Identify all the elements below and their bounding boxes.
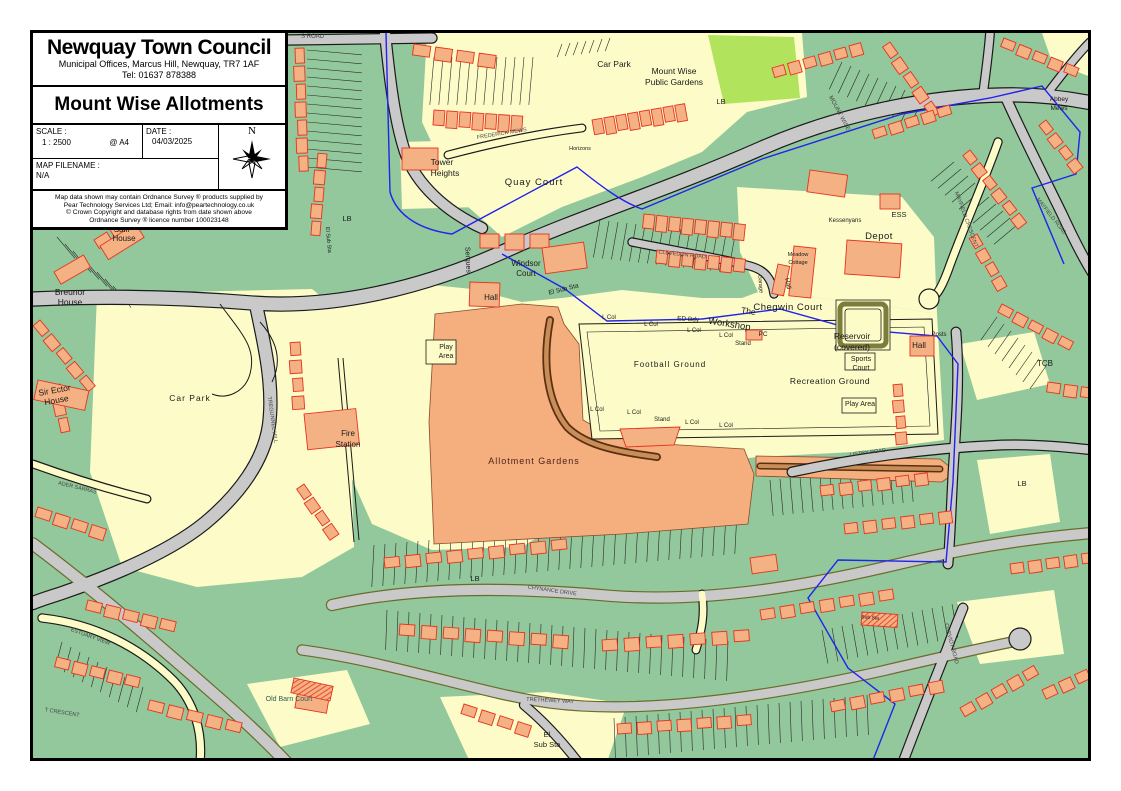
council-name: Newquay Town Council [35,36,283,59]
map-label: Tower [431,157,454,167]
map-label: Car Park [597,59,631,69]
stand-south [620,427,680,447]
page: 'S ROADCar ParkMount WisePublic GardensL… [0,0,1121,791]
map-label: Cottage [788,260,807,266]
map-label: L Col [685,420,699,426]
map-label: Station [336,440,361,449]
title-block: Newquay Town Council Municipal Offices, … [30,30,288,230]
terrace-building [830,699,846,711]
filename-value: N/A [36,171,215,181]
map-label: Fire [341,429,355,438]
map-label: Heights [431,168,460,178]
terrace-building [295,102,307,117]
terrace-building [290,342,301,356]
terrace-building [733,224,746,241]
map-label: House [112,234,136,243]
terrace-building [446,111,458,129]
terrace-building [405,554,421,568]
map-label: Play [439,344,453,351]
map-label: Serques [463,247,471,274]
map-label: Sports [851,356,872,363]
mid-building [750,554,778,573]
map-label: LB [716,97,725,106]
terrace-building [468,548,484,560]
terrace-building [443,627,459,639]
map-label: Court [852,365,869,372]
map-label: Court [516,269,536,278]
terrace-building [294,66,306,81]
map-label: Car Park [169,393,211,403]
terrace-building [412,44,430,57]
map-label: LB [1017,479,1026,488]
terrace-building [553,635,569,649]
terrace-building [737,715,752,726]
terrace-building [889,688,905,702]
terrace-building [657,720,672,731]
terrace-building [858,480,872,492]
council-address: Municipal Offices, Marcus Hill, Newquay,… [35,59,283,70]
north-arrow-icon [230,137,274,181]
terrace-building [1046,557,1060,569]
road-turning-circle [1009,628,1031,650]
map-title: Mount Wise Allotments [33,87,285,125]
compass-cell: N [219,125,285,189]
terrace-building [530,234,549,248]
terrace-building [637,722,652,735]
map-label: 'S ROAD [300,34,325,40]
date-label: DATE : [146,127,171,136]
terrace-building [426,552,442,564]
terrace-building [488,545,504,559]
terrace-building [551,539,567,551]
terrace-building [901,515,915,528]
map-label: Hall [484,293,498,302]
terrace-building [1028,560,1043,574]
map-label: Windsor [511,259,541,268]
terrace-building [313,170,325,185]
terrace-building [734,630,750,642]
terrace-building [938,511,952,524]
terrace-building [602,639,618,651]
scale-label: SCALE : [36,127,67,136]
map-label: Quay Court [505,177,564,188]
scale-value: 1 : 2500 [42,138,71,148]
terrace-building [1047,382,1061,394]
terrace-building [760,608,775,620]
map-label: Chegwin Court [753,302,822,313]
map-label: (covered) [834,342,870,352]
terrace-building [592,118,604,135]
terrace-building [1063,555,1078,569]
copyright-note: Map data shown may contain Ordnance Surv… [33,191,285,227]
terrace-building [892,400,904,413]
terrace-building [668,634,684,648]
map-label: Mount Wise [652,66,697,76]
terrace-building [800,602,815,614]
terrace-building [1010,562,1024,574]
terrace-building [919,513,933,525]
terrace-building [663,106,675,123]
terrace-building [895,475,909,487]
terrace-building [1063,384,1078,398]
map-label: L Col [687,328,701,334]
terrace-building [681,218,694,235]
terrace-building [707,221,720,238]
terrace-building [787,60,802,75]
map-label: Stand [654,417,670,423]
terrace-building [456,50,474,63]
terrace-building [707,255,719,269]
map-label: Mews [1051,105,1069,112]
map-label: Posts [931,332,946,338]
date-value: 04/03/2025 [146,137,215,147]
terrace-building [839,482,853,495]
ess-building [880,194,900,209]
map-label: L Col [719,423,733,429]
terrace-building [311,221,321,236]
map-label: Breunor [55,287,85,297]
terrace-building [879,589,894,601]
terrace-building [459,112,471,128]
map-label: Public Gardens [645,77,703,87]
terrace-building [624,637,640,651]
terrace-building [893,384,903,397]
map-label: L Col [627,410,641,416]
terrace-building [509,632,525,646]
terrace-building [909,684,925,696]
terrace-building [839,595,854,607]
map-label: Allotment Gardens [488,456,580,466]
terrace-building [896,416,906,429]
region-public-gardens [708,35,800,104]
copyright-line: Ordnance Survey ® licence number 1000231… [35,217,283,225]
terrace-building [643,214,655,229]
map-label: Horizons [569,146,591,152]
map-label: L Col [644,322,658,328]
terrace-building [292,396,305,410]
map-label: TCB [1037,359,1053,368]
terrace-building [298,120,308,135]
terrace-building [472,113,484,131]
terrace-building [296,84,306,99]
terrace-building [509,543,525,555]
region-cream-lb-right [977,454,1060,534]
terrace-building [844,522,858,534]
terrace-building [859,592,875,606]
terrace-building [505,234,524,250]
terrace-building [818,51,833,66]
terrace-building [317,153,327,168]
date-cell: DATE : 04/03/2025 [143,125,219,159]
terrace-building [639,110,651,127]
terrace-building [780,605,796,619]
terrace-building [399,624,415,636]
map-label: L Col [602,315,616,321]
filename-cell: MAP FILENAME : N/A [33,159,219,189]
terrace-building [485,114,497,130]
terrace-building [434,47,453,62]
terrace-building [820,484,834,496]
depot-building [845,240,902,278]
terrace-building [877,477,891,490]
map-label: Old Barn Court [266,696,313,703]
map-label: ESS [891,210,906,219]
terrace-building [850,696,866,710]
map-label: L Col [590,407,604,413]
terrace-building [433,110,445,126]
terrace-building [882,518,896,530]
terrace-building [677,719,692,732]
terrace-building [895,432,907,445]
terrace-building [616,114,628,131]
map-label: LB [342,214,351,223]
map-label: El [544,730,551,739]
road-turning-circle [919,289,939,309]
map-label: Abbey [1050,96,1069,103]
map-label: LB [470,574,479,583]
terrace-building [295,48,305,63]
copyright-line: Map data shown may contain Ordnance Surv… [35,194,283,202]
map-label: L Col [719,333,733,339]
map-label: Sub Sta [534,740,562,749]
map-label: Recreation Ground [790,376,870,386]
map-label: House [58,297,83,307]
terrace-building [421,626,437,640]
terrace-building [289,360,302,374]
map-label: Area [439,353,454,360]
terrace-building [863,520,877,533]
map-label: Football Ground [634,360,706,369]
kessenyans-building [807,170,848,197]
terrace-building [487,630,503,642]
map-label: Meadow [788,252,809,258]
terrace-building [314,187,324,202]
terrace-building [646,636,662,648]
terrace-building [1081,552,1088,564]
map-label: Kessenyans [829,218,862,224]
terrace-building [720,222,732,237]
terrace-building [1080,387,1088,399]
map-label: Reservoir [834,331,871,341]
terrace-building [849,43,864,58]
terrace-building [465,629,481,643]
terrace-building [928,680,944,694]
terrace-building [655,215,668,232]
north-label: N [248,126,256,137]
map-label: Hall [912,341,926,350]
terrace-building [869,692,885,704]
terrace-building [617,723,632,734]
terrace-building [480,234,499,248]
terrace-building [717,716,732,729]
terrace-building [310,204,322,219]
title-block-header: Newquay Town Council Municipal Offices, … [33,33,285,87]
terrace-building [531,633,547,645]
terrace-building [720,257,733,273]
terrace-building [296,138,308,153]
terrace-building [478,53,497,68]
terrace-building [293,378,304,392]
windsor-court-building [542,242,587,274]
copyright-line: © Crown Copyright and database rights fr… [35,209,283,217]
terrace-building [299,156,309,171]
terrace-building [690,633,706,645]
map-meta-grid: SCALE : 1 : 2500 @ A4 DATE : 04/03/2025 … [33,125,285,191]
terrace-building [914,473,928,486]
map-label: Depot [865,231,893,242]
terrace-building [384,556,400,568]
terrace-building [733,258,745,272]
scale-paper: @ A4 [109,138,129,148]
terrace-building [712,631,728,645]
terrace-building [819,598,835,612]
terrace-building [697,717,712,728]
map-label: Stand [735,341,751,347]
terrace-building [694,219,706,234]
scale-cell: SCALE : 1 : 2500 @ A4 [33,125,143,159]
map-label: Play Area [845,401,875,408]
terrace-building [668,217,680,232]
terrace-building [447,550,463,564]
map-label: PC [758,331,767,338]
council-telephone: Tel: 01637 878388 [35,70,283,81]
terrace-building [530,541,546,555]
filename-label: MAP FILENAME : [36,161,100,170]
